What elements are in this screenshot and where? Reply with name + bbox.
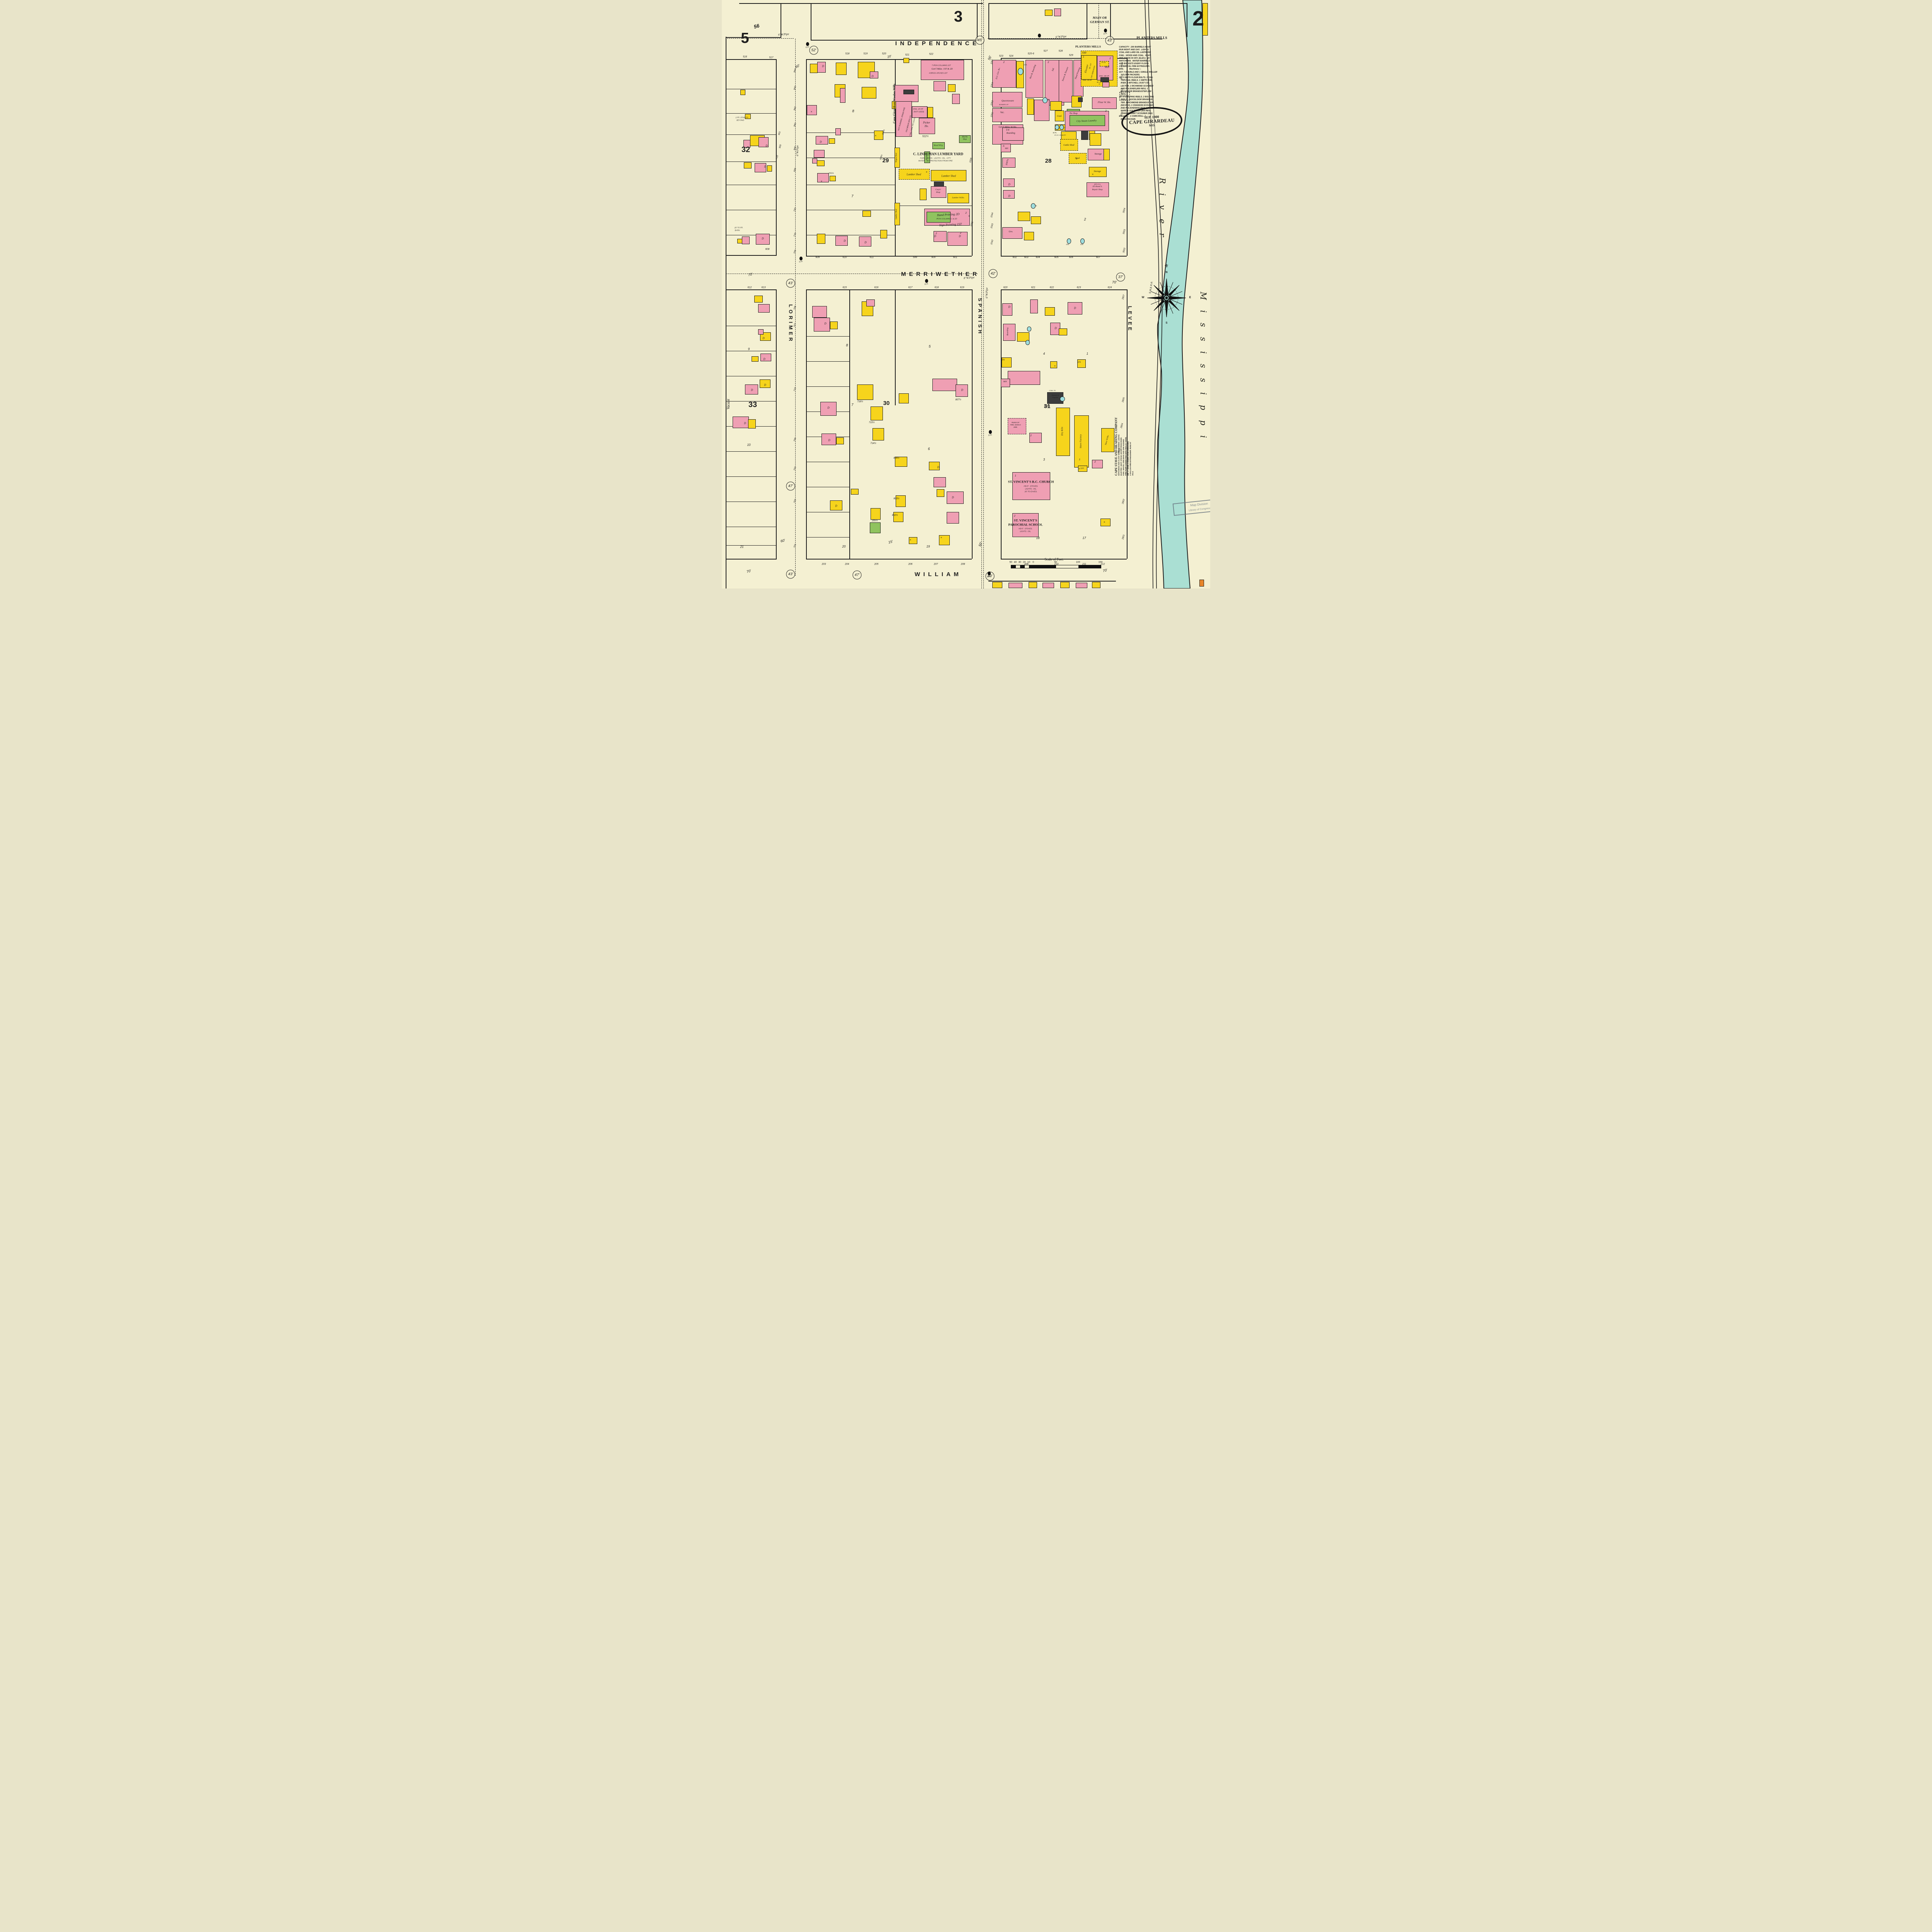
planters-note-line: 2 CHEMICAL FIRE EXTINGUISH- xyxy=(1119,65,1185,68)
label: HEAT : STOVES. xyxy=(1019,528,1032,530)
label: 610 xyxy=(843,257,847,259)
label: D xyxy=(762,237,764,240)
label: D xyxy=(828,439,830,442)
river-name-part: Mississippi xyxy=(1199,292,1208,508)
building xyxy=(1018,212,1030,221)
label: ST. VINCENT'S xyxy=(1014,519,1037,522)
circled-distance: 45' xyxy=(976,36,985,45)
planters-note-line: FUEL : WOOD AND COAL. HEAT: xyxy=(1119,54,1185,57)
label: 802½ xyxy=(892,514,898,517)
label: WATER. NO PROTECTION FROM FIRE xyxy=(918,160,953,162)
building xyxy=(758,329,764,335)
label: LIGHTS : OIL. xyxy=(1020,531,1031,533)
planters-note-line: WATCHMAN. WATER BARRELS xyxy=(1119,60,1185,63)
label: ENG. 25 HP. xyxy=(1083,80,1092,81)
label: 26' TO EAVES. xyxy=(1025,491,1037,493)
label: Shop xyxy=(936,192,940,194)
utility-dot xyxy=(989,430,992,434)
label: W.Ts. xyxy=(1053,132,1057,134)
label: 5 xyxy=(741,31,749,46)
label: D xyxy=(824,322,826,325)
building xyxy=(1045,10,1053,16)
label: D xyxy=(934,235,936,238)
label: Dry Kiln xyxy=(1061,427,1064,436)
building xyxy=(927,107,933,118)
lot-line xyxy=(806,256,972,257)
label: 529 xyxy=(1069,54,1073,57)
label: SPANISH xyxy=(977,298,983,336)
label: 521 xyxy=(905,54,910,57)
building xyxy=(810,64,818,73)
label: 601 xyxy=(953,257,957,259)
building xyxy=(872,428,884,440)
label: 205½ xyxy=(872,520,878,522)
label: 623 xyxy=(1077,287,1081,289)
building xyxy=(880,230,887,238)
circled-distance: 47' xyxy=(853,571,862,580)
building xyxy=(1078,97,1083,102)
planters-note-line: 1ST: 7 DOUBLE AND 1 SINGLE ROLLER xyxy=(1119,71,1185,74)
building xyxy=(851,489,859,495)
building xyxy=(1076,583,1087,588)
label: × xyxy=(1076,158,1077,160)
building xyxy=(1060,582,1070,588)
label: BARN xyxy=(735,230,740,232)
label: PAROCHIAL SCHOOL xyxy=(1008,523,1043,527)
label: D xyxy=(744,422,746,425)
lot-line xyxy=(726,134,776,135)
label: 1900. xyxy=(1014,427,1017,428)
utility-dot xyxy=(1104,29,1107,32)
utility-dot xyxy=(806,42,809,46)
lot-line xyxy=(806,336,849,337)
label: D xyxy=(820,141,821,143)
label: 600 xyxy=(932,257,936,259)
label: 29 xyxy=(883,158,889,164)
lot-line xyxy=(988,581,1116,582)
building xyxy=(866,299,875,306)
label: D xyxy=(844,240,845,242)
building xyxy=(952,94,960,104)
lot-line xyxy=(895,206,972,206)
building xyxy=(742,236,750,244)
building xyxy=(1031,216,1041,224)
label: Boarding xyxy=(1007,328,1009,336)
label: BEYOND xyxy=(736,120,744,122)
label: D xyxy=(1054,327,1056,330)
cistern xyxy=(1026,340,1030,345)
building xyxy=(748,419,756,429)
label: 612 xyxy=(748,287,752,289)
building xyxy=(1030,299,1038,313)
label: Cist. xyxy=(1066,244,1069,245)
label: Gen'l Mdse. 1ST & 2D xyxy=(932,68,953,70)
scale-cell xyxy=(1078,565,1101,568)
label: 2 xyxy=(1105,110,1106,112)
building xyxy=(1045,307,1055,316)
building xyxy=(1034,100,1049,121)
planters-note-line: AND POLISHER,(650 REV). 1 xyxy=(1119,88,1185,90)
label: PLANTERS MILLS xyxy=(1075,45,1101,48)
building xyxy=(1054,9,1061,16)
compass-w: W xyxy=(1142,296,1145,299)
lot-line xyxy=(806,185,895,185)
label: Lumber Shed xyxy=(906,173,921,176)
building xyxy=(829,138,835,144)
planters-note-line: TRIFUGAL REELS. 1 SMITH PUR- xyxy=(1119,79,1185,82)
building xyxy=(835,236,848,246)
building xyxy=(870,71,878,78)
label: INDEPENDENCE xyxy=(895,41,980,47)
label: FIRE. MARCH xyxy=(1010,424,1020,426)
label: 19 xyxy=(927,545,930,548)
lot-line xyxy=(1001,289,1002,559)
label: 613 xyxy=(762,287,766,289)
building xyxy=(934,477,946,487)
cape-stave-note: CAPE STAVE AND HEADING COMPANY WATCHMAN … xyxy=(1114,391,1137,476)
label: 20' TO FR. xyxy=(735,227,743,229)
building xyxy=(744,162,752,168)
building xyxy=(817,234,825,244)
label: Boarding xyxy=(1007,132,1015,134)
building xyxy=(1024,232,1034,240)
lot-line xyxy=(806,462,849,462)
building xyxy=(870,522,881,533)
label: × xyxy=(940,536,942,539)
label: 2 xyxy=(1192,8,1204,29)
label: Lumber W.Ho. xyxy=(952,197,964,199)
label: 611 xyxy=(870,257,874,259)
label: 10 xyxy=(747,444,751,447)
circled-distance: 47' xyxy=(786,482,795,491)
circled-distance: 37' xyxy=(1116,273,1125,282)
label: 1 xyxy=(1015,475,1016,477)
building xyxy=(1092,582,1100,588)
building xyxy=(903,58,909,63)
building xyxy=(1003,324,1015,341)
lot-line xyxy=(849,289,850,559)
label: D xyxy=(765,145,767,147)
label: D xyxy=(864,241,866,244)
label: 2½ xyxy=(1002,359,1005,361)
lot-line xyxy=(726,559,776,560)
label: D xyxy=(764,384,766,386)
building xyxy=(932,379,957,391)
label: 803½ xyxy=(893,498,899,500)
building xyxy=(1092,460,1103,468)
label: Tin Shop xyxy=(1069,112,1077,115)
building xyxy=(1043,583,1054,588)
label: 2 xyxy=(965,212,966,214)
label: Eng.Rm xyxy=(1053,397,1058,398)
lot-line xyxy=(806,386,849,387)
building xyxy=(752,356,759,362)
cistern xyxy=(1060,125,1064,130)
label: × xyxy=(968,215,970,218)
label: 30 xyxy=(883,400,890,406)
utility-dot xyxy=(988,571,991,575)
label: 528 xyxy=(1059,50,1063,53)
lot-line xyxy=(1001,289,1127,290)
lot-line xyxy=(726,451,776,452)
compass-s: S xyxy=(1166,321,1168,324)
building xyxy=(807,105,817,115)
label: 804½ xyxy=(893,457,899,459)
label: 622 xyxy=(1050,287,1054,289)
label: 7 xyxy=(851,403,853,406)
label: Cist. xyxy=(1080,244,1083,245)
lot-line xyxy=(1110,39,1162,39)
lot-line xyxy=(726,37,781,38)
planters-note-title: PLANTERS MILLS xyxy=(1119,36,1185,40)
scale-tick: 0 xyxy=(1032,561,1034,564)
lot-line xyxy=(1087,3,1087,39)
building xyxy=(1008,371,1040,385)
label: D. xyxy=(1003,145,1005,147)
label: RUINS OF xyxy=(1012,422,1019,423)
scale-tick: 150 xyxy=(1099,561,1103,564)
label: × xyxy=(821,180,822,183)
label: 520 xyxy=(882,53,886,56)
utility-dot xyxy=(925,279,928,283)
label: 527 xyxy=(1044,50,1048,53)
label: 618 xyxy=(935,287,939,289)
utility-dot xyxy=(1038,34,1041,37)
label: Shop xyxy=(963,138,967,140)
label: 3 xyxy=(954,9,963,25)
building xyxy=(814,150,825,158)
label: 4 xyxy=(1043,352,1045,355)
label: Cist. xyxy=(1024,64,1027,66)
label: LORIMER xyxy=(788,304,793,344)
building xyxy=(948,84,956,92)
lot-line xyxy=(726,351,776,351)
building xyxy=(992,108,1022,122)
building xyxy=(812,306,827,318)
sanborn-map-sheet: SEP. 1900 CAPE GIRARDEAU MO. PLANTERS MI… xyxy=(722,0,1210,588)
label: 8 xyxy=(852,109,854,113)
label: Coal. xyxy=(1057,115,1062,117)
cistern xyxy=(1027,327,1031,332)
planters-note-line: LECTOR. 1 RICHMOND SCOURER xyxy=(1119,85,1185,88)
label: 2 xyxy=(1003,61,1004,64)
lot-line xyxy=(988,3,989,39)
label: × xyxy=(1078,468,1080,470)
label: 206 xyxy=(908,563,913,566)
lot-line xyxy=(776,289,777,560)
label: 714½ xyxy=(870,442,876,445)
label: FUEL : WOOD. LIGHTS : OIL. CITY xyxy=(920,158,951,160)
label: 716½ xyxy=(857,401,863,403)
label: × xyxy=(1060,142,1061,145)
building xyxy=(740,90,745,95)
building xyxy=(812,158,817,163)
label: × xyxy=(811,111,812,113)
planters-note-line: COAL AND LARD OIL LANTERNS xyxy=(1119,51,1185,54)
circled-distance: 43' xyxy=(786,570,795,579)
lot-line xyxy=(806,289,807,559)
building xyxy=(920,189,927,200)
lot-line xyxy=(726,289,776,290)
building xyxy=(817,62,826,73)
planters-note-line: 3 FLOUR PACKERS. xyxy=(1119,74,1185,77)
lot-line xyxy=(1001,559,1127,560)
water-pipe-dash xyxy=(983,0,984,588)
lot-line xyxy=(806,210,895,210)
lot-line xyxy=(806,361,849,362)
building xyxy=(1199,580,1204,587)
label: 2 xyxy=(1048,61,1049,64)
label: Wood 12' xyxy=(1120,95,1129,97)
lot-line xyxy=(1187,3,1187,37)
label: Wagon Shed xyxy=(895,153,897,163)
building xyxy=(896,495,906,507)
cistern xyxy=(1080,238,1085,244)
building xyxy=(1009,583,1022,588)
building xyxy=(1102,82,1109,87)
building xyxy=(862,87,876,99)
label: Queensware xyxy=(1002,100,1014,103)
building xyxy=(816,136,828,145)
building xyxy=(836,437,844,444)
label: 807½ xyxy=(955,399,961,401)
planters-note-line: CAPACITY : 200 BARRELS A DAY xyxy=(1119,46,1185,49)
planters-note-line: ERS. Machinery :- xyxy=(1119,68,1185,71)
label: Picker xyxy=(923,121,930,124)
lot-line xyxy=(726,527,776,527)
label: 1 xyxy=(1079,459,1080,461)
label: (DR.CO.) xyxy=(1094,184,1101,185)
label: × xyxy=(1092,173,1094,176)
label: 1 xyxy=(1083,56,1084,58)
label: 204 xyxy=(845,563,849,566)
building xyxy=(1104,149,1110,160)
label: Mill xyxy=(1003,381,1007,383)
lot-line xyxy=(726,59,776,60)
label: Mill xyxy=(1005,148,1008,150)
label: Marble xyxy=(962,136,968,138)
label: Carp'r xyxy=(935,189,941,191)
river-name-part: River xyxy=(1158,178,1167,255)
scale-tick: 10 xyxy=(1027,561,1030,564)
label: × xyxy=(1104,521,1105,524)
label: Ho. xyxy=(925,125,929,128)
building xyxy=(758,304,770,313)
building xyxy=(899,393,909,403)
planters-note-line: IFIER. 1 MITCHELL DUST COL- xyxy=(1119,82,1185,85)
label: 2 xyxy=(1030,435,1031,437)
label: D xyxy=(764,165,766,168)
label: 2 xyxy=(1109,58,1111,60)
planters-note-line: ONE STOVE IN OFF. (ELEV.) NO xyxy=(1119,57,1185,60)
label: 605 xyxy=(1054,257,1059,259)
building xyxy=(947,512,959,524)
lot-line xyxy=(726,376,776,376)
building xyxy=(934,81,946,91)
label: Flour W. Ho. xyxy=(1098,102,1111,104)
label: Lumber Shed xyxy=(941,175,956,177)
lot-line xyxy=(726,210,776,210)
label: COAL YD. xyxy=(1049,390,1056,392)
label: 525-6 xyxy=(1028,53,1034,56)
building xyxy=(733,417,749,428)
label: × xyxy=(1054,365,1056,367)
scale-tick: 30 xyxy=(1019,561,1021,564)
label: 32 xyxy=(742,146,750,154)
label: LIGHTS : OIL. xyxy=(1025,488,1037,490)
label: 6"W.Pipe xyxy=(778,32,789,36)
lot-line xyxy=(726,255,776,256)
utility-dot xyxy=(799,257,803,260)
label: 603 xyxy=(1024,257,1029,259)
label: 3 xyxy=(1043,458,1045,461)
stave-note-line: VALS. xyxy=(1132,391,1134,476)
label: 208 xyxy=(961,563,965,566)
building xyxy=(1100,519,1111,526)
cistern xyxy=(1060,396,1065,401)
label: Storage xyxy=(1095,153,1102,155)
planters-note-line: RUN NIGHT AND DAY. LIGHTS: xyxy=(1119,49,1185,51)
label: × xyxy=(875,134,876,137)
label: D xyxy=(763,358,765,361)
label: OFF. xyxy=(1080,468,1084,470)
cistern xyxy=(1031,203,1036,209)
label: 624 xyxy=(1108,287,1112,289)
label: FR.3D xyxy=(1102,62,1106,64)
label: 70' xyxy=(1112,281,1117,284)
label: Gen'l Mdse W.Ho. xyxy=(998,126,1017,129)
label: 207 xyxy=(934,563,938,566)
compass-n: N xyxy=(1165,271,1167,274)
label: Mill xyxy=(1105,66,1109,68)
planters-note-line: AND BUCKETS EVERY FLOOR. xyxy=(1119,63,1185,65)
building xyxy=(857,384,873,400)
label: 203 xyxy=(822,563,826,566)
cistern xyxy=(1043,97,1048,103)
lot-line xyxy=(726,162,776,162)
label: 2 xyxy=(1014,515,1015,517)
label: D xyxy=(1074,307,1076,310)
planters-note-line: NARD & LEA BRUSH (600 REV). xyxy=(1119,110,1185,112)
building xyxy=(817,173,829,182)
label: IR.CH. 18' AB.RF. xyxy=(1054,135,1066,136)
label: × xyxy=(926,171,927,173)
stave-note-title: CAPE STAVE AND HEADING COMPANY xyxy=(1114,391,1118,476)
label: LEVEE xyxy=(1127,306,1133,333)
lot-line xyxy=(726,545,776,546)
planters-note-line: TER. 1 RICHMOND BRANDUSTER xyxy=(1119,102,1185,104)
building xyxy=(754,296,763,303)
building xyxy=(937,489,944,497)
building xyxy=(992,60,1016,88)
label: D xyxy=(1008,306,1010,308)
north-fleur-icon: ⚜ xyxy=(1164,263,1169,269)
label: 530 xyxy=(1082,52,1087,55)
label: 2 xyxy=(1094,461,1095,463)
scale-cell xyxy=(1029,565,1034,568)
building xyxy=(1027,99,1034,115)
label: 607 xyxy=(1096,257,1100,259)
scale-cell xyxy=(1034,565,1056,568)
label: 523 xyxy=(999,55,1003,58)
label: ENG. 25 HP xyxy=(913,109,923,111)
label: D xyxy=(937,466,939,469)
label: 619 xyxy=(960,287,964,289)
label: 1 xyxy=(1087,352,1088,355)
label: C. LINDEMAN LUMBER YARD xyxy=(913,152,963,156)
planters-mills-note: PLANTERS MILLS CAPACITY : 200 BARRELS A … xyxy=(1119,30,1185,126)
lot-line xyxy=(895,289,896,405)
